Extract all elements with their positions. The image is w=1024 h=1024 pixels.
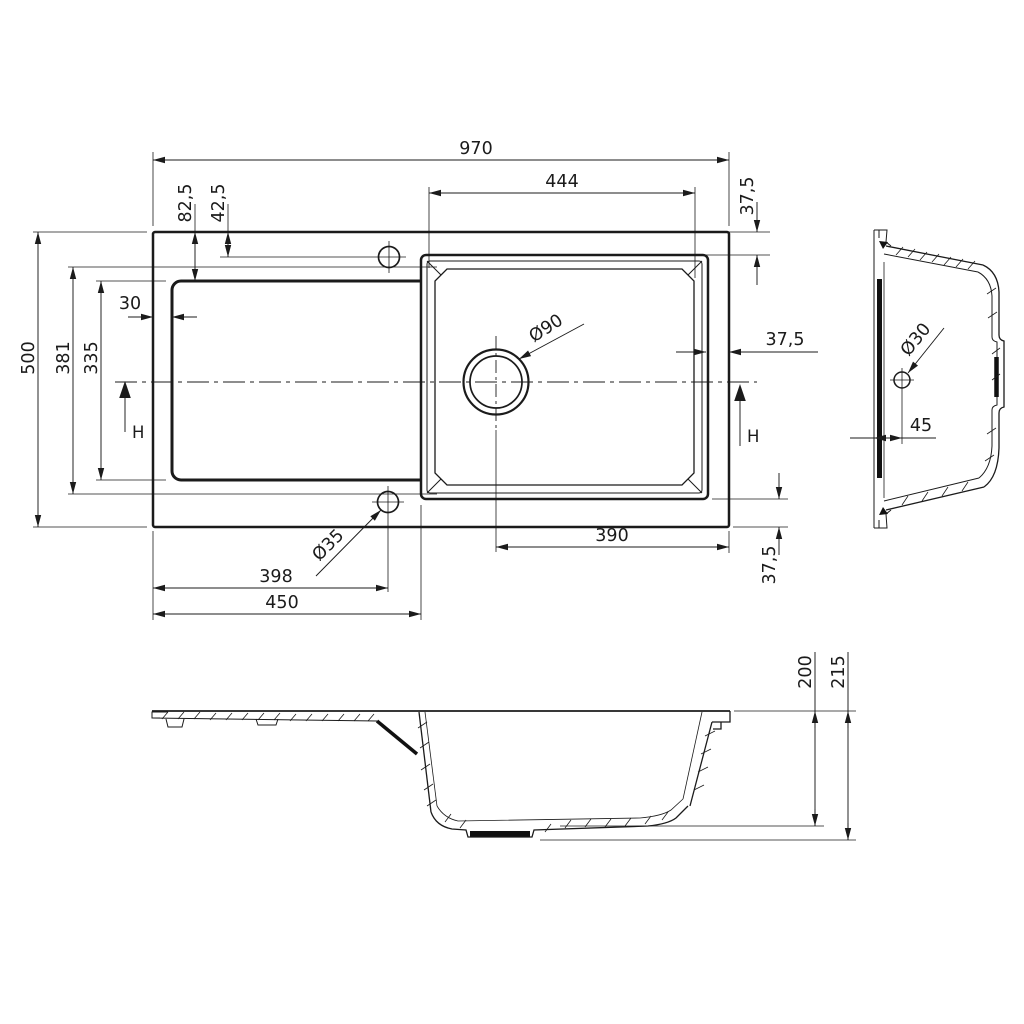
height-marker-right: H [734,384,759,446]
drain-boss [470,831,530,837]
bottom-band-inner [884,478,979,501]
dim-label-30: 30 [119,294,141,314]
h-label-left: H [132,423,144,442]
top-band-inner [884,254,978,272]
bowl-floor-inner [437,799,683,821]
dim-drain-to-edge: 390 [496,526,729,553]
dim-label-500: 500 [19,341,39,374]
drainer-outline [172,281,430,480]
dim-label-37-5-bottom: 37,5 [760,546,780,585]
dim-label-215: 215 [829,655,849,688]
tap-hole [220,241,406,273]
dim-label-398: 398 [259,567,292,587]
right-profile-outer [983,265,1004,487]
bottom-band-outer [886,487,984,510]
dim-label-37-5-top: 37,5 [738,177,758,216]
technical-drawing-page: 970 444 37,5 82,5 42,5 [0,0,1024,1024]
outlet-hole-crosshair [372,486,404,518]
mounting-clip [166,719,184,727]
sink-technical-drawing: 970 444 37,5 82,5 42,5 [0,0,1024,1024]
top-band-outer [886,246,983,265]
chute-edge [377,721,417,754]
dim-label-444: 444 [545,172,578,192]
top-flange-wedge [879,241,888,249]
up-arrow-icon [734,384,746,401]
up-arrow-icon [119,381,131,398]
dim-label-82-5: 82,5 [176,184,196,223]
dim-label-42-5: 42,5 [209,184,229,223]
dim-label-381: 381 [54,341,74,374]
right-rim-step [712,711,730,729]
dim-label-200: 200 [796,655,816,688]
outlet-hole [372,486,404,592]
dim-overall-width: 970 [153,139,729,226]
right-profile-inner [978,272,997,478]
dim-label-335: 335 [82,341,102,374]
bowl-left-wall-inner [425,712,437,806]
top-view: 970 444 37,5 82,5 42,5 [19,139,818,620]
dim-label-d30: Ø30 [897,320,935,361]
side-view: Ø30 45 [850,230,1004,528]
dim-label-970: 970 [459,139,492,159]
side-hole [890,368,914,392]
dim-label-390: 390 [595,526,628,546]
bowl-left-wall-outer [419,712,431,812]
height-marker-left: H [119,381,144,442]
tap-hole-crosshair [220,241,406,273]
dim-drainer-width: 450 [153,505,421,620]
leader-outlet-hole: Ø35 [309,510,381,576]
bowl-shell-outer [431,806,688,837]
drainer-slab-underside [152,712,377,721]
dim-label-d35: Ø35 [309,526,349,566]
dim-label-45: 45 [910,416,932,436]
dim-tap-hole-offset-b: 42,5 [209,184,229,257]
dim-overall-depth: 500 [19,232,147,527]
section-view: 200 215 [152,652,856,840]
dim-rim-margin-bottom: 37,5 [712,473,788,584]
dim-label-37-5-right: 37,5 [766,330,805,350]
leader-side-hole: Ø30 [897,320,944,373]
h-label-right: H [747,427,759,446]
dim-label-450: 450 [265,593,298,613]
side-hole-crosshair [890,368,914,392]
bowl-right-wall-inner [683,712,702,799]
dim-side-hole-offset: 45 [850,392,936,444]
bottom-flange-wedge [879,507,888,515]
hatch-ticks [418,722,436,806]
bowl-right-wall-outer [690,722,712,806]
